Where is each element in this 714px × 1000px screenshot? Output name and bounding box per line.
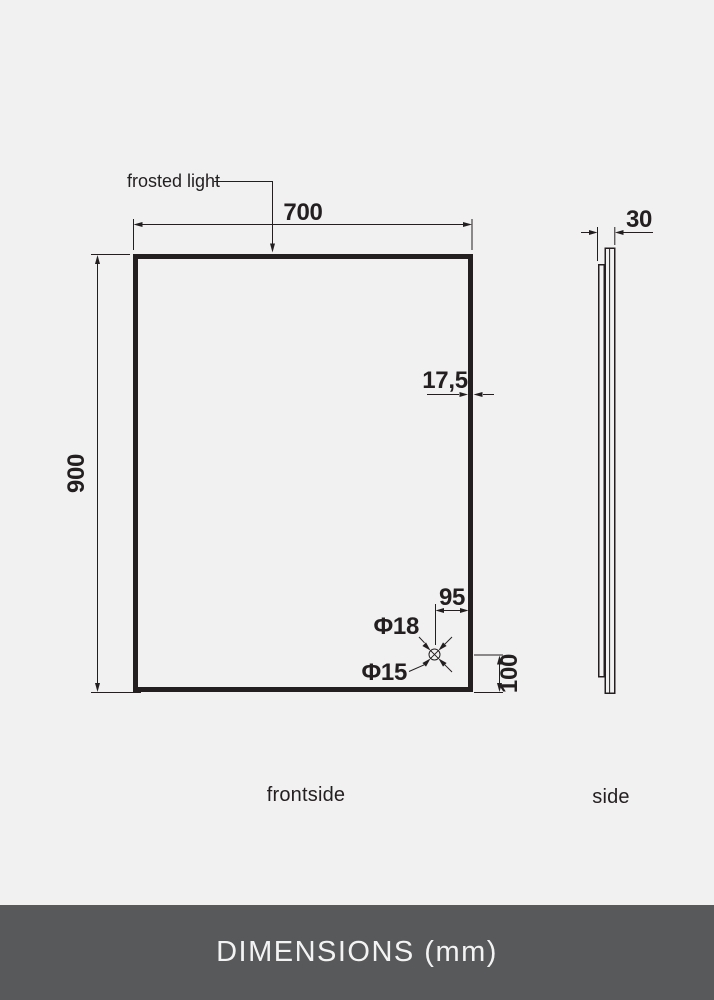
side-view: 30 side (581, 206, 653, 808)
arrow-down-icon (270, 244, 275, 253)
arrow-up-icon (95, 255, 100, 264)
arrow-left-icon (134, 222, 143, 227)
dim-depth-30: 30 (581, 206, 653, 261)
width-value: 700 (283, 199, 322, 226)
hole-outer-diameter-value: Φ18 (374, 613, 420, 640)
arrow-right-icon (463, 222, 472, 227)
leader-line (419, 637, 425, 643)
leader-line (214, 182, 273, 244)
hole-offset-x-value: 95 (439, 584, 465, 611)
arrow-down-right-icon (422, 642, 430, 650)
arrow-right-icon (589, 230, 598, 235)
mirror-front-outline (136, 257, 471, 690)
hole-inner-diameter-value: Φ15 (362, 659, 408, 686)
frame-value: 17,5 (422, 367, 468, 394)
footer-bar: DIMENSIONS (mm) (0, 905, 714, 1000)
depth-value: 30 (626, 206, 652, 233)
height-value: 900 (63, 454, 90, 493)
dim-hole-offset-100: 100 (474, 654, 523, 693)
cable-hole: Φ18 Φ15 (362, 613, 453, 686)
dim-frame-17-5: 17,5 (422, 367, 494, 397)
dim-hole-offset-95: 95 (436, 584, 469, 645)
hole-offset-y-value: 100 (496, 654, 523, 693)
side-view-label: side (592, 786, 630, 808)
arrow-left-icon (474, 392, 483, 397)
footer-title: DIMENSIONS (mm) (216, 936, 498, 969)
arrow-down-icon (95, 683, 100, 692)
front-view: frosted light 700 900 (63, 171, 523, 806)
dim-height-900: 900 (63, 255, 141, 693)
leader-line (409, 665, 424, 672)
front-view-label: frontside (267, 784, 346, 806)
dimension-diagram: frosted light 700 900 (0, 0, 714, 905)
arrow-left-icon (615, 230, 624, 235)
leader-line (445, 637, 452, 644)
mirror-back-panel-outline (599, 265, 605, 677)
annotation-frosted-light: frosted light (127, 171, 275, 253)
leader-line (445, 665, 452, 672)
dimension-drawing-page: frosted light 700 900 (0, 0, 714, 1000)
dim-width-700: 700 (134, 199, 473, 250)
hole-center-cross (431, 651, 439, 659)
frosted-light-label: frosted light (127, 171, 220, 191)
